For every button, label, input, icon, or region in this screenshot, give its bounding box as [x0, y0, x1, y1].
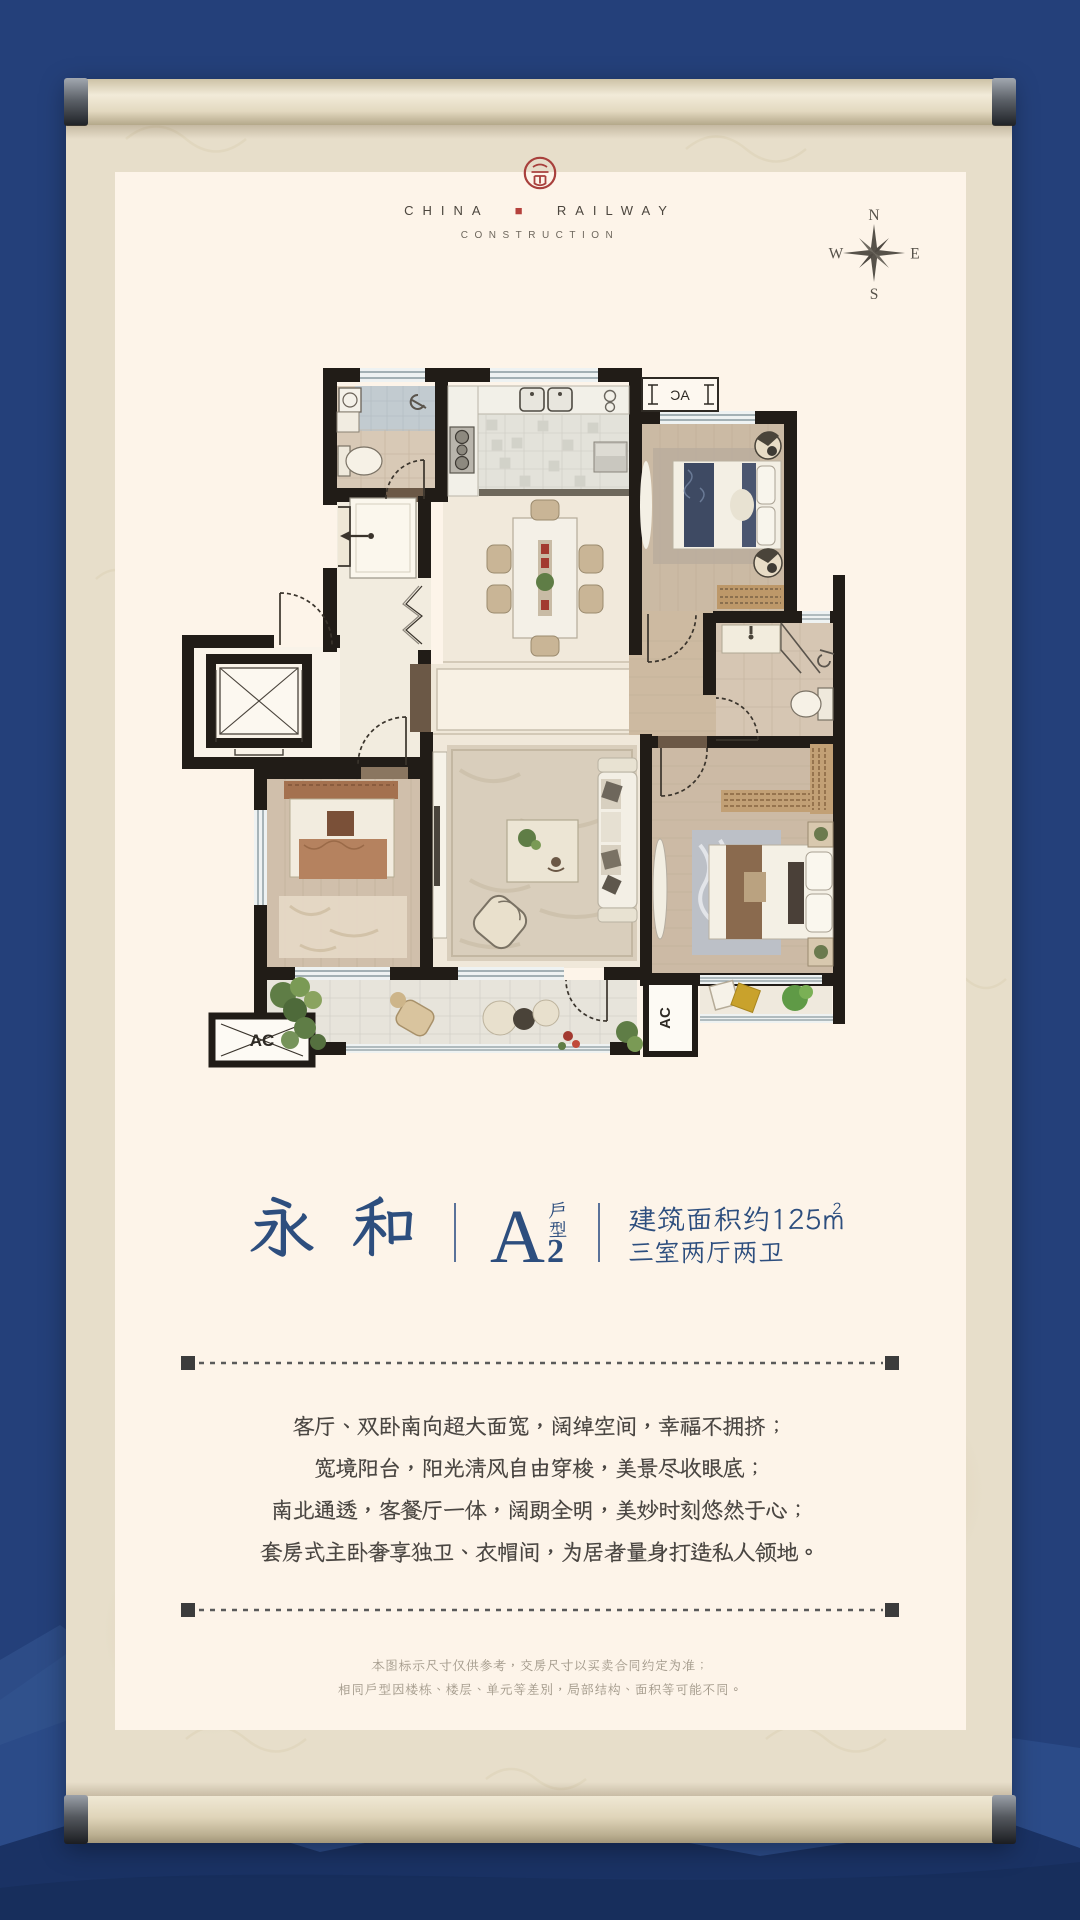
svg-text:A: A	[490, 1195, 545, 1279]
svg-text:2: 2	[547, 1233, 564, 1270]
